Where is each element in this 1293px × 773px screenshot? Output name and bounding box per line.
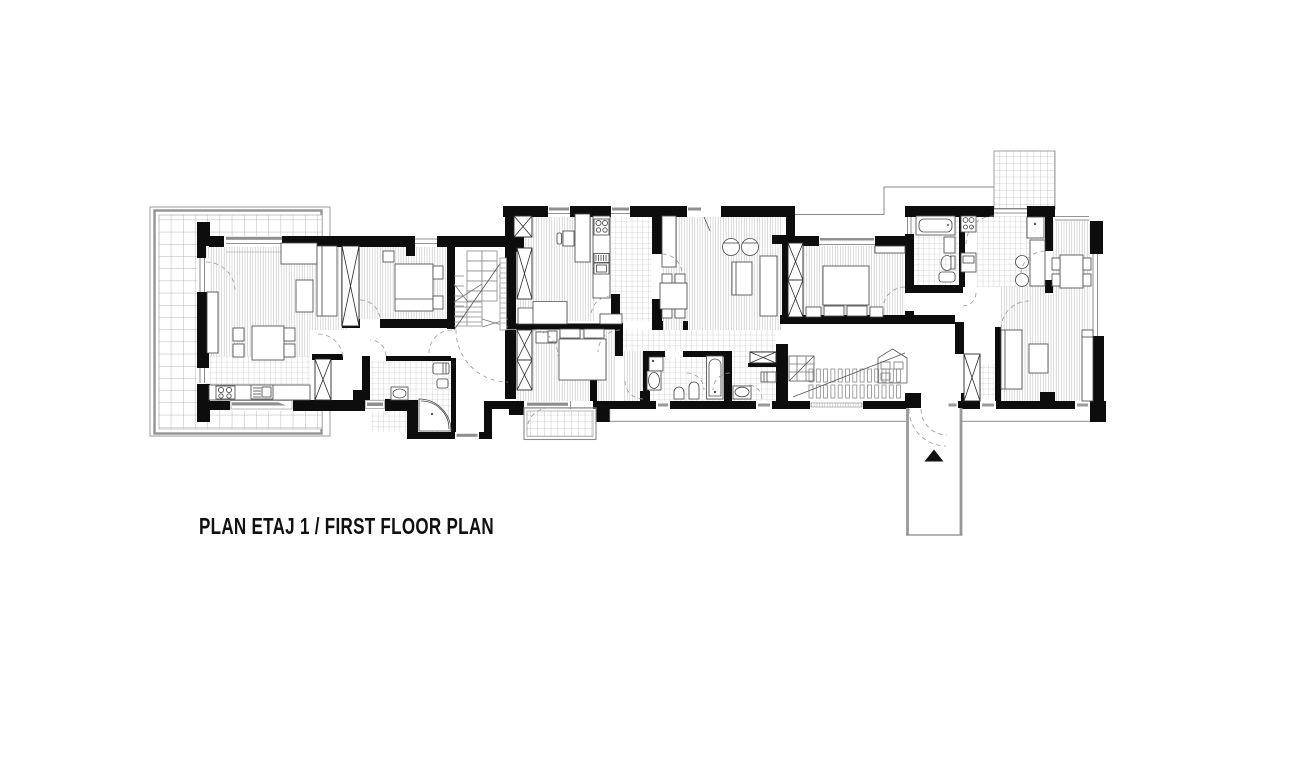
svg-text:PLAN ETAJ 1 / FIRST FLOOR PLAN: PLAN ETAJ 1 / FIRST FLOOR PLAN — [199, 513, 494, 539]
